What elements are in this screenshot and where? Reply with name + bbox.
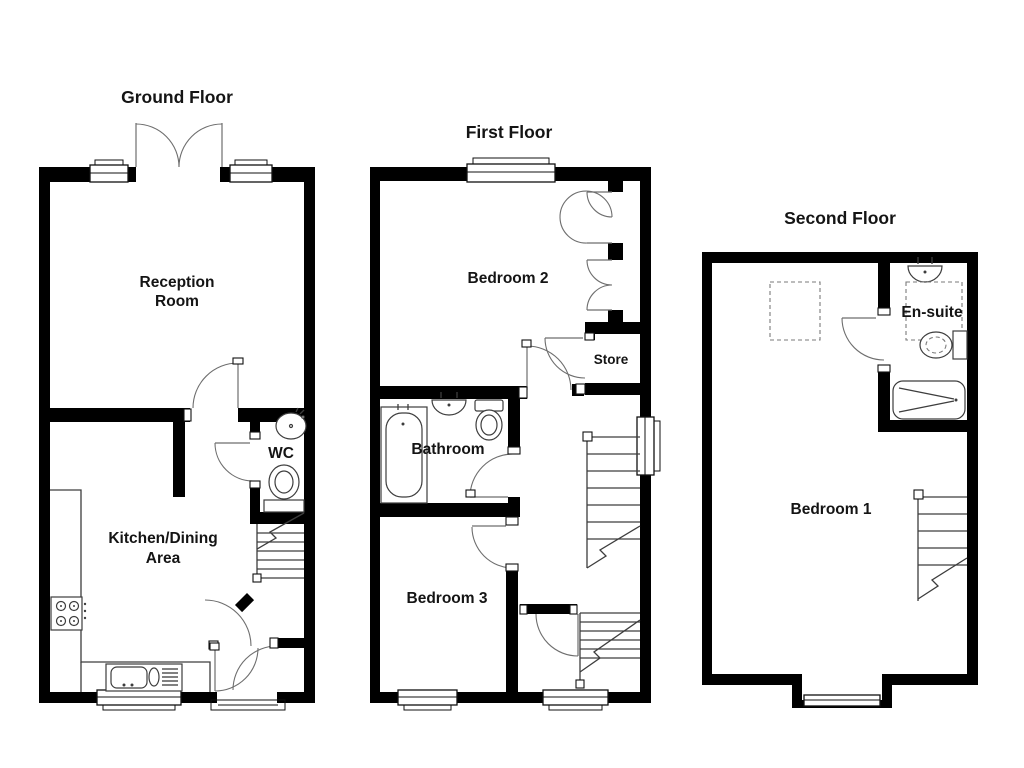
sf-bedroom1-restricted-height bbox=[770, 282, 820, 340]
gf-reception-window-left bbox=[90, 160, 128, 182]
bedroom3-label: Bedroom 3 bbox=[407, 590, 488, 607]
ground-floor-title: Ground Floor bbox=[121, 87, 233, 107]
bedroom1-label: Bedroom 1 bbox=[791, 501, 872, 518]
ff-bedroom3-window bbox=[398, 690, 457, 710]
floorplan-drawing: Ground Floor bbox=[0, 0, 1024, 768]
ff-windows bbox=[398, 158, 660, 710]
ff-wardrobe-doors bbox=[560, 191, 612, 310]
first-floor-title: First Floor bbox=[466, 122, 553, 142]
gf-sink bbox=[106, 664, 182, 691]
kitchen-dining-label-2: Area bbox=[146, 550, 181, 567]
gf-kitchen-counter bbox=[50, 490, 210, 692]
gf-reception-window-right bbox=[230, 160, 272, 182]
ff-bedroom2-door bbox=[519, 340, 571, 398]
gf-reception-door bbox=[184, 358, 243, 421]
first-floor-plan: First Floor bbox=[370, 122, 660, 710]
ff-stairs-up bbox=[583, 432, 640, 568]
gf-wc-toilet bbox=[264, 465, 304, 512]
sf-ensuite-door bbox=[842, 308, 890, 372]
ff-bathroom-toilet bbox=[475, 400, 503, 440]
sf-ensuite-bath bbox=[893, 381, 965, 419]
reception-room-label-1: Reception bbox=[140, 274, 215, 291]
ground-floor-plan: Ground Floor bbox=[39, 87, 315, 710]
ff-landing-side-window bbox=[637, 417, 660, 475]
reception-room-label-2: Room bbox=[155, 293, 199, 310]
second-floor-title: Second Floor bbox=[784, 208, 896, 228]
ensuite-label: En-suite bbox=[901, 304, 963, 321]
bathroom-label: Bathroom bbox=[411, 441, 484, 458]
ff-hall-window bbox=[543, 690, 608, 710]
sf-ensuite-toilet bbox=[920, 331, 967, 359]
ff-bedroom2-window bbox=[467, 158, 555, 182]
gf-wc-door bbox=[215, 432, 260, 488]
sf-dormer-window bbox=[804, 695, 880, 706]
wc-label: WC bbox=[268, 445, 294, 462]
gf-kitchen-window bbox=[97, 690, 181, 710]
gf-entrance-doors bbox=[210, 638, 285, 710]
bedroom2-label: Bedroom 2 bbox=[468, 270, 549, 287]
store-label: Store bbox=[594, 352, 629, 367]
ff-stairs-down bbox=[576, 613, 640, 688]
sf-stairs bbox=[914, 490, 967, 601]
ff-bedroom3-door bbox=[472, 517, 518, 571]
floorplan-page: Ground Floor bbox=[0, 0, 1024, 768]
kitchen-dining-label-1: Kitchen/Dining bbox=[108, 530, 217, 547]
gf-hob bbox=[51, 597, 86, 630]
second-floor-plan: Second Floor bbox=[702, 208, 978, 708]
gf-french-doors bbox=[136, 123, 222, 167]
